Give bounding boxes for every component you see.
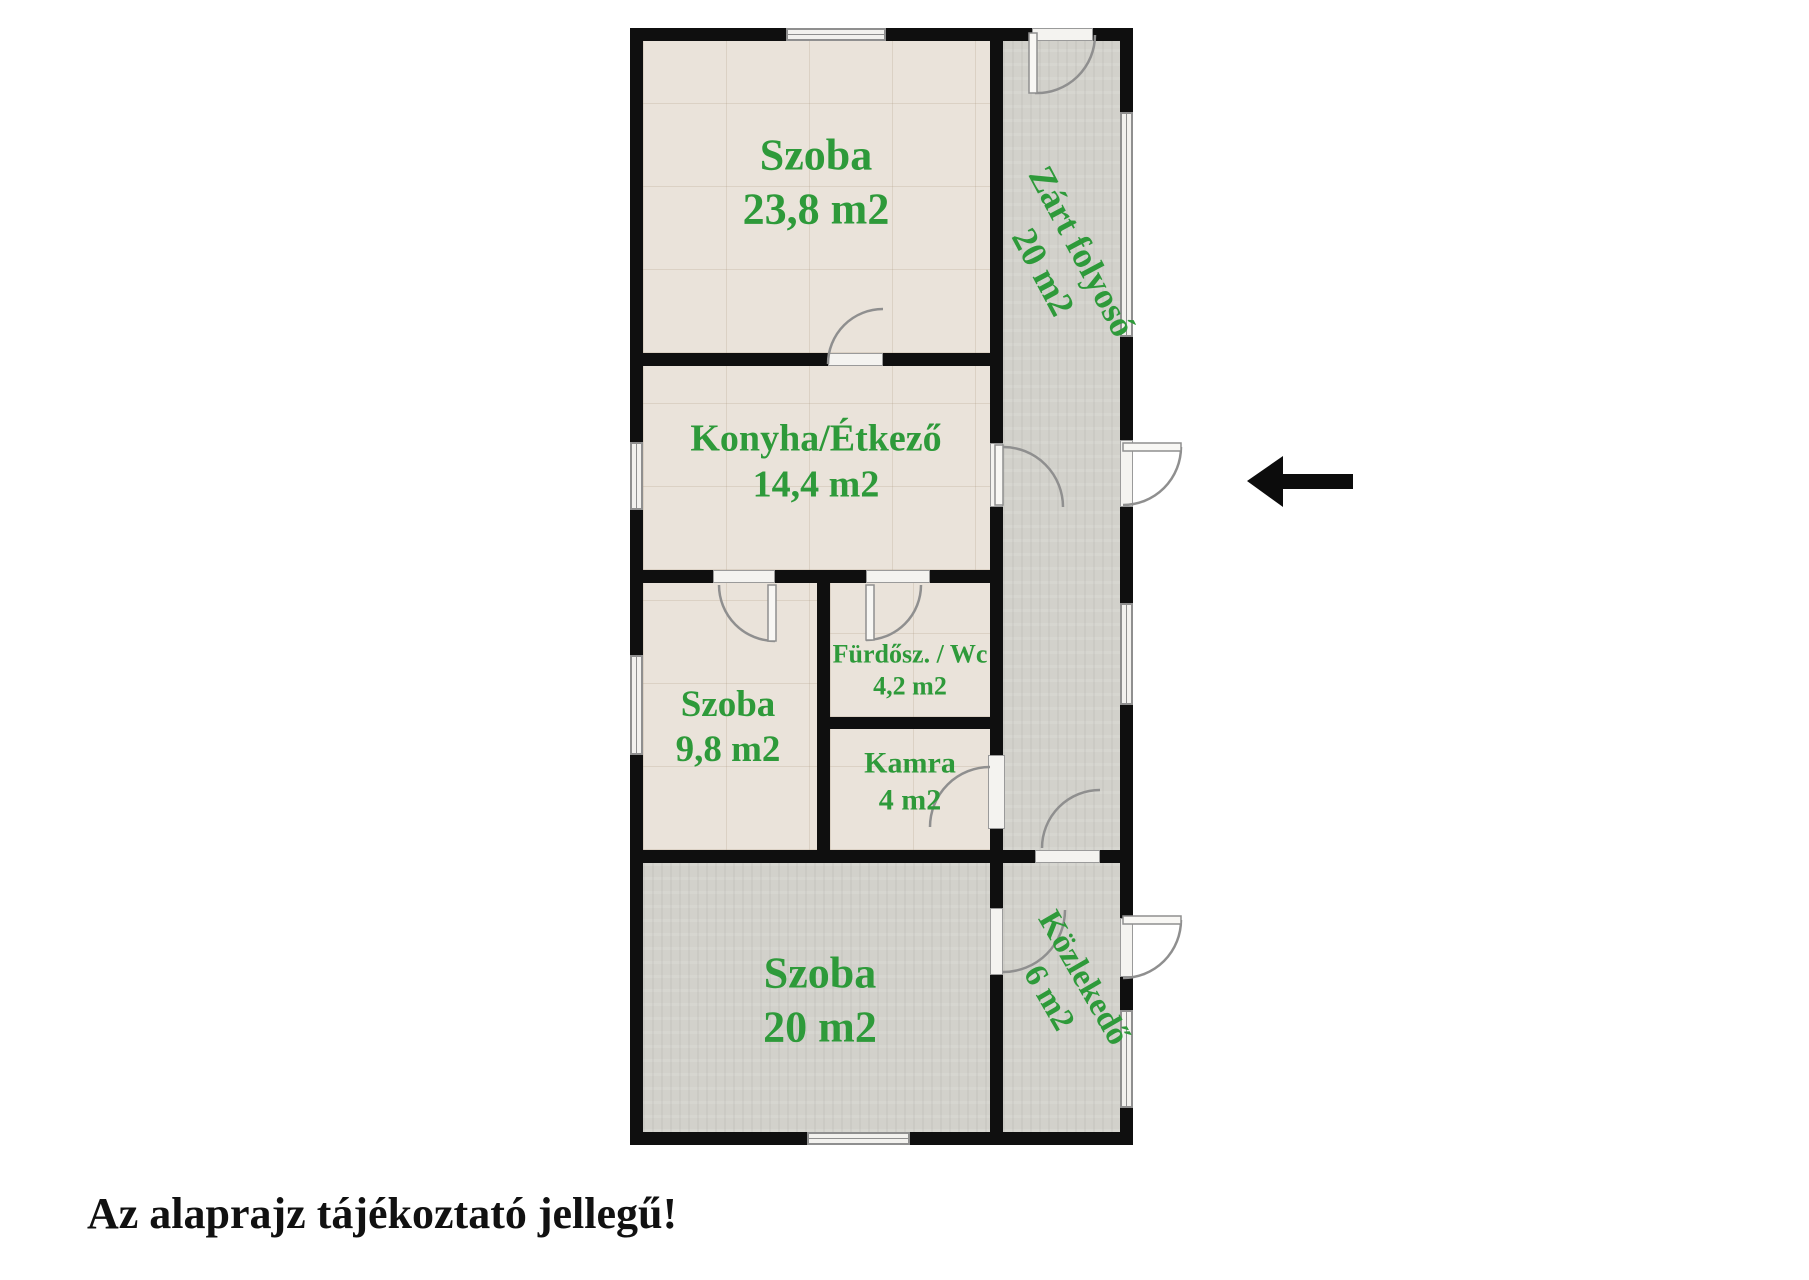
door-leaf <box>1123 916 1181 924</box>
room-name: Konyha/Étkező <box>690 416 941 462</box>
door-leaf <box>866 585 874 640</box>
room-label-kamra: Kamra 4 m2 <box>864 745 956 818</box>
room-label-furdoszoba: Fürdősz. / Wc 4,2 m2 <box>833 638 988 701</box>
entrance-arrow-icon <box>1247 456 1353 507</box>
door-arc <box>1042 790 1100 848</box>
room-label-szoba-nagy: Szoba 23,8 m2 <box>743 128 890 235</box>
room-label-szoba-also: Szoba 20 m2 <box>763 946 877 1053</box>
floor-plan: Szoba 23,8 m2 Konyha/Étkező 14,4 m2 Szob… <box>0 0 1809 1280</box>
room-name: Szoba <box>763 946 877 1000</box>
door-arc <box>1123 447 1181 505</box>
room-label-konyha: Konyha/Étkező 14,4 m2 <box>690 416 941 509</box>
room-area: 9,8 m2 <box>676 727 781 772</box>
room-name: Szoba <box>743 128 890 182</box>
door-arc <box>719 585 775 641</box>
door-leaf <box>768 585 776 641</box>
room-area: 4,2 m2 <box>833 670 988 702</box>
room-label-szoba-kozepes: Szoba 9,8 m2 <box>676 682 781 772</box>
door-arc <box>1123 920 1181 978</box>
door-arc <box>1035 35 1095 93</box>
room-name: Fürdősz. / Wc <box>833 638 988 670</box>
door-arc <box>828 309 883 364</box>
door-leaf <box>1123 443 1181 451</box>
door-leaf <box>995 445 1003 505</box>
door-leaf <box>1029 33 1037 93</box>
room-name: Kamra <box>864 745 956 782</box>
door-arc <box>1003 447 1063 507</box>
disclaimer-note: Az alaprajz tájékoztató jellegű! <box>87 1188 677 1239</box>
room-area: 20 m2 <box>763 1000 877 1054</box>
room-area: 14,4 m2 <box>690 462 941 508</box>
room-name: Szoba <box>676 682 781 727</box>
room-area: 4 m2 <box>864 782 956 819</box>
room-area: 23,8 m2 <box>743 182 890 236</box>
